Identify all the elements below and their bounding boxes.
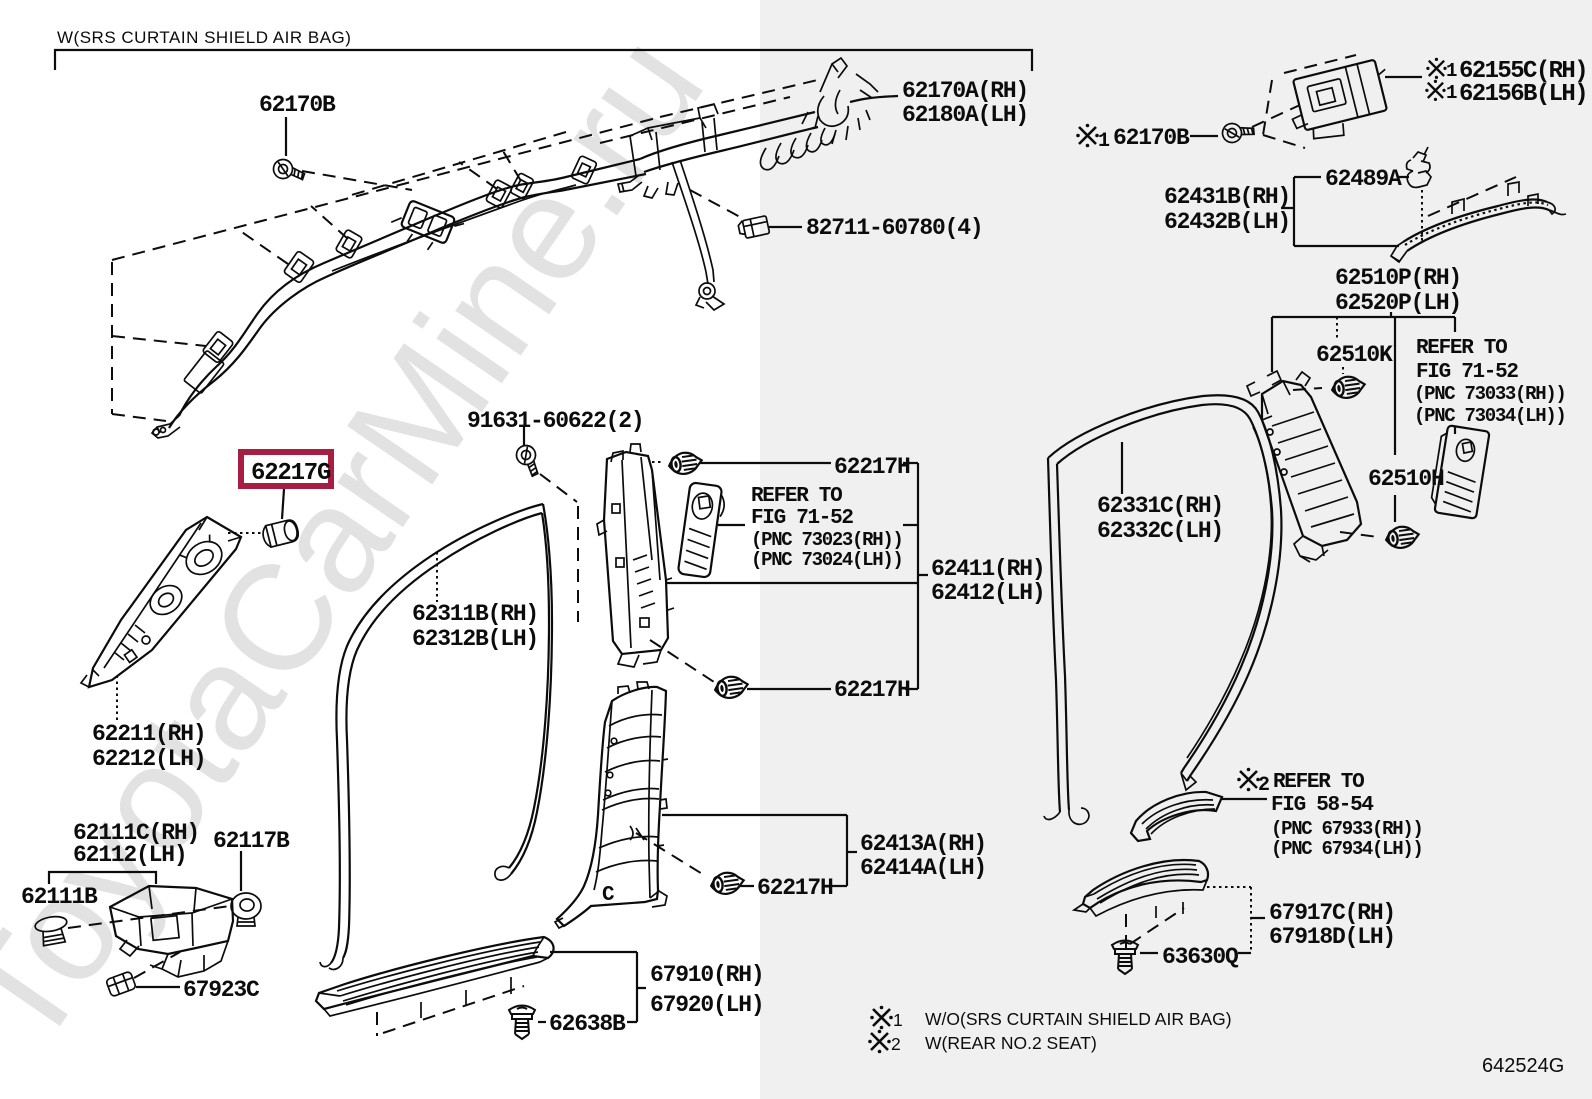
svg-text:62332C(LH): 62332C(LH) [1097,518,1223,544]
svg-text:62520P(LH): 62520P(LH) [1335,290,1461,316]
svg-text:FIG 58-54: FIG 58-54 [1271,794,1373,817]
svg-text:67917C(RH): 67917C(RH) [1269,900,1395,926]
svg-text:62212(LH): 62212(LH) [92,746,205,772]
svg-text:62217H: 62217H [834,454,910,480]
svg-text:(PNC 67933(RH)): (PNC 67933(RH)) [1271,818,1423,840]
svg-text:(PNC 67934(LH)): (PNC 67934(LH)) [1271,838,1423,860]
svg-text:62180A(LH): 62180A(LH) [902,102,1028,128]
svg-text:FIG 71-52: FIG 71-52 [1416,361,1518,384]
svg-text:(PNC 73024(LH)): (PNC 73024(LH)) [751,549,903,571]
svg-text:642524G: 642524G [1482,1055,1564,1077]
svg-text:62170B: 62170B [259,92,336,118]
svg-text:2: 2 [891,1034,901,1054]
svg-text:62411(RH): 62411(RH) [931,556,1044,582]
svg-text:62170B: 62170B [1113,125,1190,151]
svg-text:62211(RH): 62211(RH) [92,721,205,747]
svg-text:FIG 71-52: FIG 71-52 [751,507,853,530]
svg-text:62217H: 62217H [757,875,833,901]
svg-text:91631-60622(2): 91631-60622(2) [467,408,643,434]
svg-text:1: 1 [893,1010,903,1030]
svg-text:W/O(SRS CURTAIN SHIELD AIR BAG: W/O(SRS CURTAIN SHIELD AIR BAG) [925,1009,1232,1029]
svg-text:W(SRS CURTAIN SHIELD AIR BAG): W(SRS CURTAIN SHIELD AIR BAG) [57,28,351,47]
svg-text:1: 1 [1098,130,1110,153]
svg-text:(PNC 73033(RH)): (PNC 73033(RH)) [1414,383,1566,405]
svg-text:62156B(LH): 62156B(LH) [1459,81,1587,108]
svg-text:62413A(RH): 62413A(RH) [860,831,986,857]
svg-text:(PNC 73034(LH)): (PNC 73034(LH)) [1414,405,1566,427]
svg-text:62217G: 62217G [251,460,331,487]
svg-text:62638B: 62638B [549,1011,626,1037]
svg-text:62510P(RH): 62510P(RH) [1335,265,1461,291]
svg-text:62111B: 62111B [21,884,98,910]
svg-text:62112(LH): 62112(LH) [73,842,186,868]
svg-text:62312B(LH): 62312B(LH) [412,626,538,652]
svg-text:62510H: 62510H [1368,466,1444,492]
svg-text:62432B(LH): 62432B(LH) [1164,209,1290,235]
svg-text:67920(LH): 67920(LH) [650,992,763,1018]
svg-text:62510K: 62510K [1316,342,1393,368]
svg-text:62431B(RH): 62431B(RH) [1164,184,1290,210]
svg-text:1: 1 [1446,60,1457,82]
svg-text:62412(LH): 62412(LH) [931,580,1044,606]
svg-text:REFER TO: REFER TO [1416,337,1507,360]
svg-text:62331C(RH): 62331C(RH) [1097,493,1223,519]
svg-text:62117B: 62117B [213,828,290,854]
svg-text:C: C [602,884,615,907]
svg-text:REFER TO: REFER TO [751,485,842,508]
svg-text:62170A(RH): 62170A(RH) [902,78,1028,104]
svg-text:67918D(LH): 67918D(LH) [1269,924,1395,950]
svg-text:62414A(LH): 62414A(LH) [860,855,986,881]
svg-text:67910(RH): 67910(RH) [650,962,763,988]
svg-text:REFER TO: REFER TO [1273,771,1364,794]
svg-text:62489A: 62489A [1325,166,1402,192]
svg-text:1: 1 [1446,82,1457,104]
svg-text:62311B(RH): 62311B(RH) [412,601,538,627]
svg-text:(PNC 73023(RH)): (PNC 73023(RH)) [751,529,903,551]
svg-text:W(REAR NO.2 SEAT): W(REAR NO.2 SEAT) [925,1033,1097,1053]
svg-text:63630Q: 63630Q [1162,944,1239,970]
svg-text:82711-60780(4): 82711-60780(4) [806,215,982,241]
svg-text:62217H: 62217H [834,677,910,703]
svg-text:2: 2 [1258,774,1269,797]
svg-text:67923C: 67923C [183,977,260,1003]
